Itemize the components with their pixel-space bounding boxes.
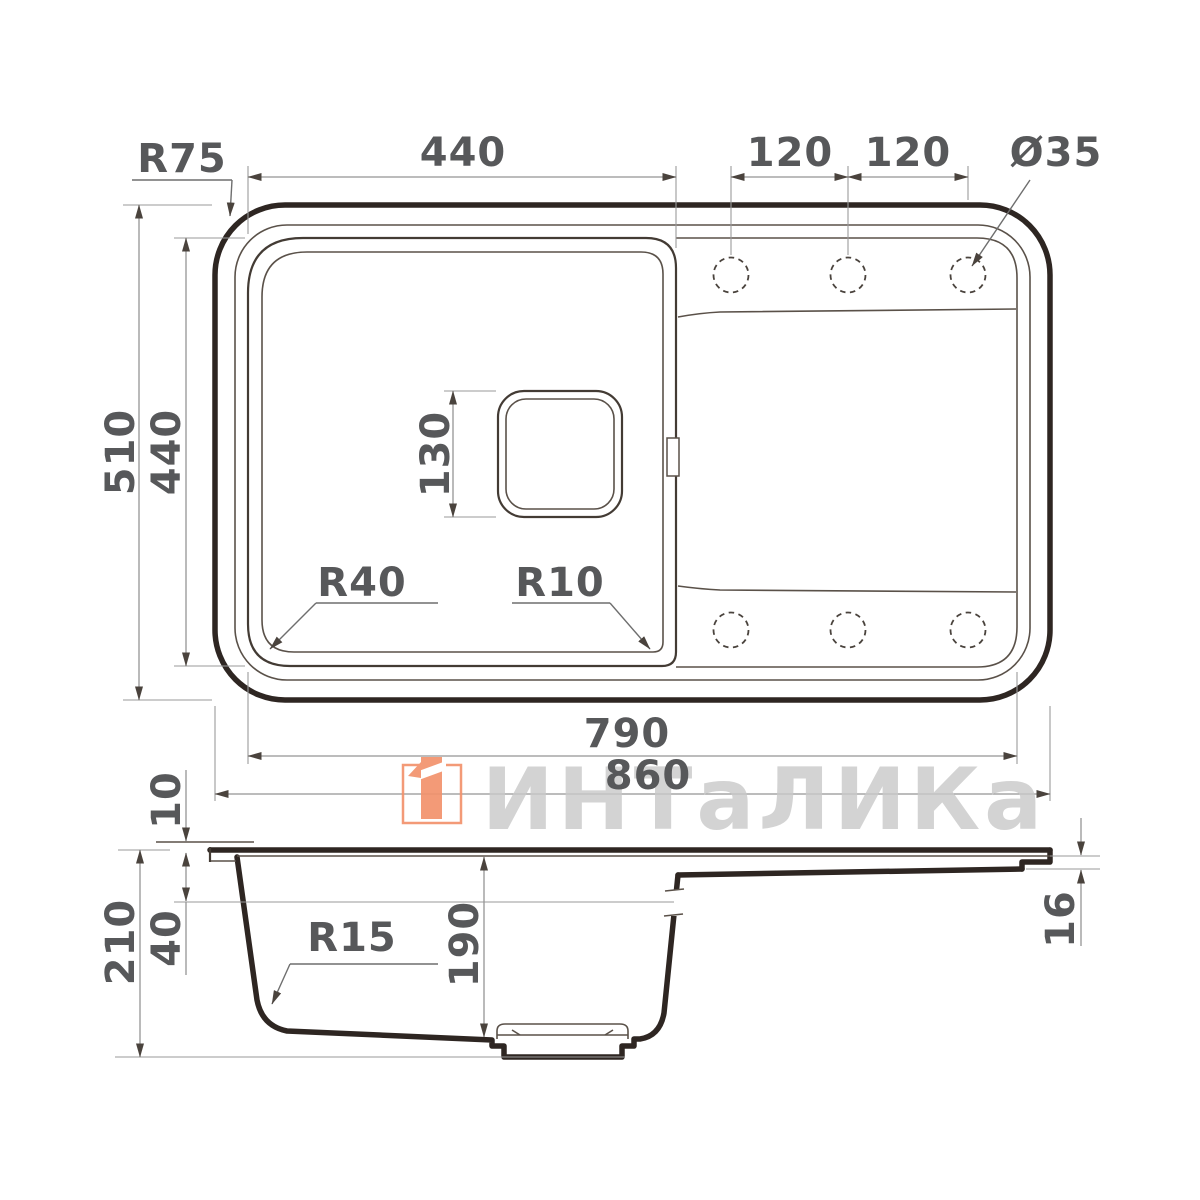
top-view: [215, 205, 1050, 700]
watermark-text: ИНТаЛИКа: [482, 750, 1046, 850]
dim-40-label: 40: [144, 909, 190, 967]
tap-hole: [951, 613, 986, 648]
sink-dimension-drawing: ИНТаЛИКа R75 440 120 120 Ø35 510 440 130…: [0, 0, 1200, 1200]
bowl-outline: [248, 238, 676, 666]
dim-510-label: 510: [98, 409, 144, 496]
dim-diameter-35-label: Ø35: [1010, 130, 1103, 176]
dim-190-label: 190: [442, 901, 488, 988]
dim-210-label: 210: [98, 899, 144, 986]
dim-790-label: 790: [584, 711, 671, 757]
dim-440-top-label: 440: [420, 130, 507, 176]
dim-860-label: 860: [605, 753, 692, 799]
drain-flange: [497, 1024, 628, 1039]
tap-hole: [831, 613, 866, 648]
tap-hole: [714, 613, 749, 648]
drain-opening: [498, 391, 622, 517]
dim-16-label: 16: [1038, 890, 1084, 948]
dim-120-first-label: 120: [747, 130, 834, 176]
tap-hole: [714, 258, 749, 293]
section-view: [156, 842, 1050, 1057]
top-view-rim-outline: [215, 205, 1050, 700]
dim-r75-label: R75: [137, 136, 226, 182]
watermark-logo: [403, 757, 461, 823]
dim-440-left-label: 440: [144, 409, 190, 496]
tap-holes: [714, 258, 986, 648]
dim-130-label: 130: [413, 411, 459, 498]
dim-r40-label: R40: [317, 560, 406, 606]
drainboard-surface-lines: [678, 309, 1016, 592]
dim-r10-label: R10: [515, 560, 604, 606]
watermark: ИНТаЛИКа: [403, 750, 1046, 850]
dim-120-second-label: 120: [865, 130, 952, 176]
dim-r15-label: R15: [307, 915, 396, 961]
dim-10-label: 10: [144, 771, 190, 829]
technical-drawing-page: ИНТаЛИКа R75 440 120 120 Ø35 510 440 130…: [0, 0, 1200, 1200]
tap-hole: [951, 258, 986, 293]
tap-hole: [831, 258, 866, 293]
overflow-notch: [667, 438, 679, 476]
